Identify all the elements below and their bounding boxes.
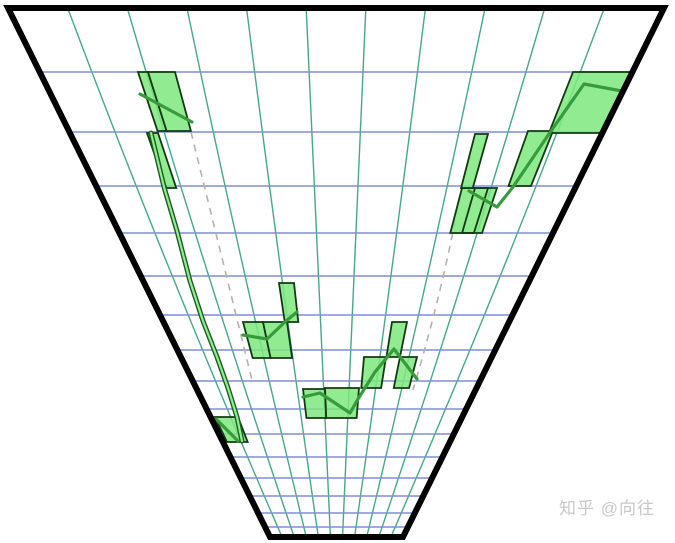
- funnel-chart: [0, 0, 675, 543]
- figure-canvas: 知乎 @向往: [0, 0, 675, 543]
- watermark: 知乎 @向往: [559, 494, 655, 519]
